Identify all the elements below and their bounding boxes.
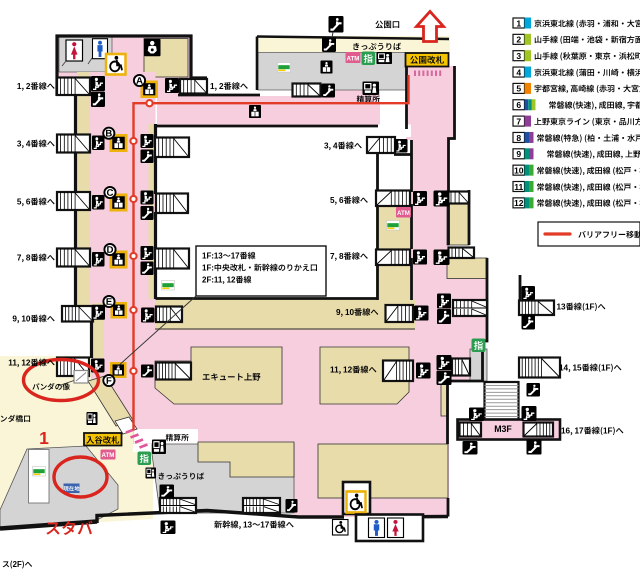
svg-text:指: 指: [474, 338, 484, 352]
svg-text:M3F: M3F: [494, 422, 512, 435]
svg-text:11: 11: [514, 181, 523, 193]
svg-text:7: 7: [516, 115, 521, 127]
svg-text:1: 1: [516, 17, 521, 29]
svg-text:7, 8番線へ: 7, 8番線へ: [330, 250, 368, 262]
svg-text:11, 12番線へ: 11, 12番線へ: [330, 364, 377, 376]
svg-text:11, 12番線へ: 11, 12番線へ: [8, 357, 55, 369]
svg-text:3: 3: [516, 50, 521, 62]
svg-text:京浜東北線 (蒲田・川崎・横浜方面): 京浜東北線 (蒲田・川崎・横浜方面): [534, 67, 640, 78]
svg-text:常磐線(特急) (柏・土浦・水戸方面): 常磐線(特急) (柏・土浦・水戸方面): [537, 133, 640, 144]
svg-text:現在地: 現在地: [63, 485, 80, 493]
svg-text:ATM: ATM: [397, 210, 410, 217]
svg-text:13番線(1F)へ: 13番線(1F)へ: [557, 301, 606, 313]
svg-text:8: 8: [516, 132, 521, 144]
svg-text:パンダの像: パンダの像: [32, 382, 70, 393]
svg-text:精算所: 精算所: [166, 433, 190, 444]
svg-text:ATM: ATM: [102, 452, 115, 459]
svg-text:9, 10番線へ: 9, 10番線へ: [12, 313, 55, 325]
svg-text:2: 2: [516, 34, 521, 46]
svg-text:公園口: 公園口: [375, 19, 400, 31]
svg-text:1: 1: [39, 425, 49, 450]
svg-text:常磐線(快速), 成田線 (松戸・柏・取手方面): 常磐線(快速), 成田線 (松戸・柏・取手方面): [537, 165, 640, 176]
svg-text:常磐線(快速), 成田線, 宇都宮線: 常磐線(快速), 成田線, 宇都宮線: [549, 100, 640, 111]
svg-text:ス(2F)へ: ス(2F)へ: [2, 559, 33, 570]
svg-text:常磐線(快速), 成田線 (松戸・柏・取手方面): 常磐線(快速), 成田線 (松戸・柏・取手方面): [537, 182, 640, 193]
svg-text:1, 2番線へ: 1, 2番線へ: [17, 80, 55, 92]
svg-text:山手線 (秋葉原・東京・浜松町方面): 山手線 (秋葉原・東京・浜松町方面): [534, 51, 640, 62]
svg-text:常磐線(快速), 成田線, 上野東京ライン: 常磐線(快速), 成田線, 上野東京ライン: [547, 149, 640, 160]
svg-text:指: 指: [363, 51, 373, 65]
svg-text:4: 4: [516, 66, 521, 78]
svg-text:きっぷうりば: きっぷうりば: [158, 471, 205, 482]
svg-text:1, 2番線へ: 1, 2番線へ: [210, 80, 248, 92]
svg-text:入谷改札: 入谷改札: [86, 434, 120, 446]
svg-text:9: 9: [516, 148, 521, 160]
svg-text:指: 指: [139, 451, 149, 465]
svg-text:16, 17番線(1F)へ: 16, 17番線(1F)へ: [561, 425, 624, 437]
svg-text:3, 4番線へ: 3, 4番線へ: [17, 138, 55, 150]
svg-text:1F:中央改札・新幹線のりかえ口: 1F:中央改札・新幹線のりかえ口: [202, 263, 318, 274]
svg-text:エキュート上野: エキュート上野: [202, 371, 261, 383]
svg-text:パンダ橋口: パンダ橋口: [0, 414, 31, 425]
svg-text:5, 6番線へ: 5, 6番線へ: [330, 194, 368, 206]
svg-text:10: 10: [514, 164, 524, 176]
svg-text:京浜東北線 (赤羽・浦和・大宮方面): 京浜東北線 (赤羽・浦和・大宮方面): [534, 18, 640, 29]
svg-text:上野東京ライン (東京・品川方面): 上野東京ライン (東京・品川方面): [534, 116, 640, 127]
svg-text:山手線 (田端・池袋・新宿方面): 山手線 (田端・池袋・新宿方面): [534, 35, 640, 46]
svg-text:5, 6番線へ: 5, 6番線へ: [17, 196, 55, 208]
svg-text:スタバ: スタバ: [45, 515, 93, 539]
svg-text:2F:11, 12番線: 2F:11, 12番線: [202, 275, 251, 286]
svg-text:常磐線(快速), 成田線 (松戸・柏・取手方面): 常磐線(快速), 成田線 (松戸・柏・取手方面): [537, 198, 640, 209]
svg-text:公園改札: 公園改札: [410, 54, 445, 66]
svg-text:きっぷうりば: きっぷうりば: [352, 41, 402, 53]
svg-text:14, 15番線(1F)へ: 14, 15番線(1F)へ: [559, 362, 622, 374]
svg-text:5: 5: [516, 83, 521, 95]
svg-text:新幹線, 13〜17番線へ: 新幹線, 13〜17番線へ: [214, 519, 294, 531]
svg-text:3, 4番線へ: 3, 4番線へ: [324, 140, 362, 152]
svg-text:宇都宮線, 高崎線 (赤羽・大宮方面): 宇都宮線, 高崎線 (赤羽・大宮方面): [534, 84, 640, 95]
svg-text:バリアフリー移動ルート: バリアフリー移動ルート: [578, 229, 640, 240]
svg-text:7, 8番線へ: 7, 8番線へ: [17, 252, 55, 264]
svg-text:6: 6: [516, 99, 521, 111]
svg-text:12: 12: [514, 197, 524, 209]
svg-text:9, 10番線へ: 9, 10番線へ: [336, 306, 379, 318]
svg-text:1F:13〜17番線: 1F:13〜17番線: [202, 251, 256, 262]
svg-text:ATM: ATM: [347, 56, 360, 63]
